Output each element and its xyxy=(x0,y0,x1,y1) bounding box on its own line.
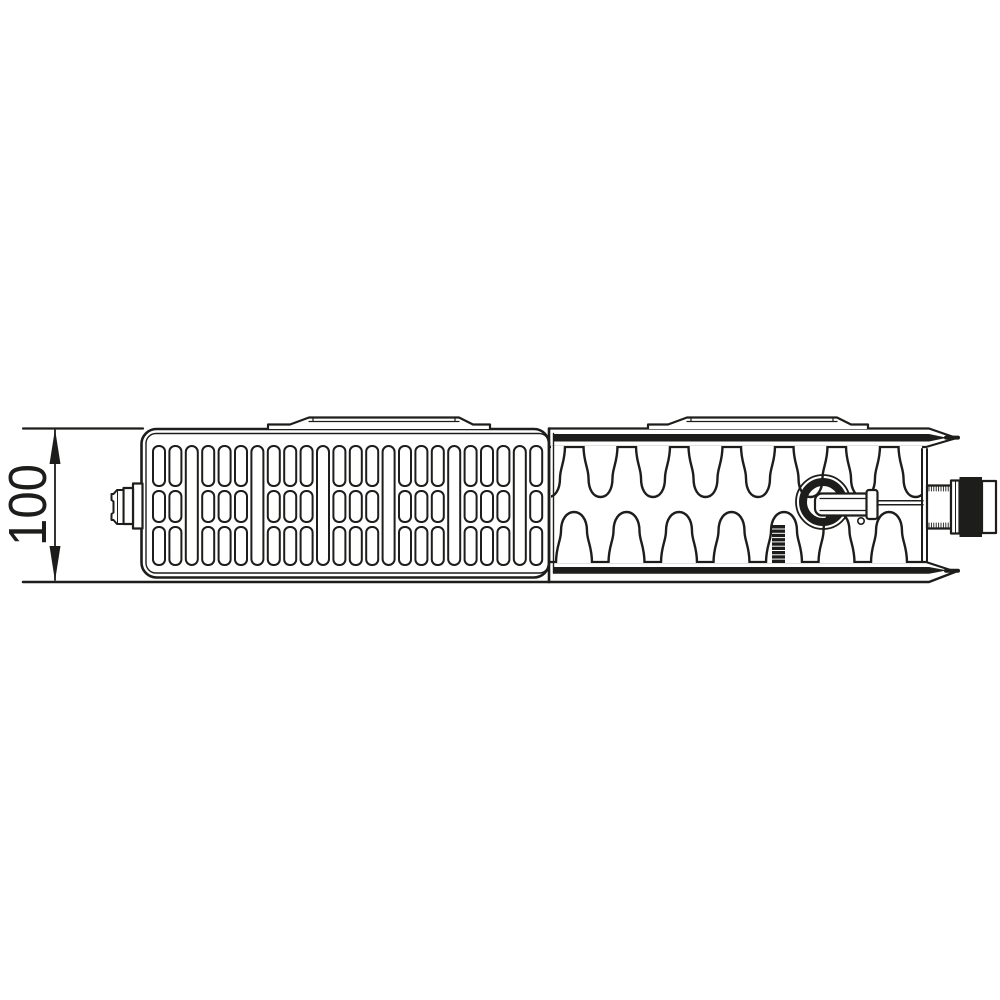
radiator-top-view-drawing: 100 xyxy=(0,0,1000,1000)
convector-fin-top xyxy=(636,446,670,497)
valve-connection-nipple xyxy=(927,486,951,529)
convector-fin-bottom xyxy=(556,512,592,563)
arrow-up-icon xyxy=(50,429,61,464)
top-rail-seam-band xyxy=(553,434,947,442)
bottom-rail-seam-band xyxy=(553,567,947,574)
valve-spindle-flange xyxy=(867,490,878,519)
drawing-svg: 100 xyxy=(0,0,1000,1000)
air-vent-plug xyxy=(112,484,143,529)
convector-fin-bottom xyxy=(661,512,697,563)
mounting-bracket xyxy=(268,418,490,430)
valve-spindle xyxy=(878,501,924,505)
valve-connection xyxy=(927,477,996,537)
arrow-down-icon xyxy=(50,546,61,581)
vent-plug-collar xyxy=(133,484,143,529)
convector-fin-top xyxy=(741,446,775,497)
weld-bar xyxy=(772,525,785,563)
vent-plug-body xyxy=(124,488,134,524)
depth-dimension-label: 100 xyxy=(0,464,58,546)
protection-cap-band xyxy=(960,477,983,537)
valve-pipe xyxy=(815,494,872,516)
convector-fin-bottom xyxy=(714,512,750,563)
protection-cap-end xyxy=(982,481,996,533)
mounting-brackets xyxy=(268,418,868,430)
fin-weld-bar xyxy=(772,525,785,563)
convector-fin-top xyxy=(584,446,618,497)
mounting-bracket xyxy=(648,418,868,430)
depth-dimension: 100 xyxy=(0,429,61,581)
valve-detail-dot xyxy=(858,518,864,524)
convector-fin-top xyxy=(689,446,723,497)
grille-panel xyxy=(142,429,554,583)
convector-fin-bottom xyxy=(609,512,645,563)
